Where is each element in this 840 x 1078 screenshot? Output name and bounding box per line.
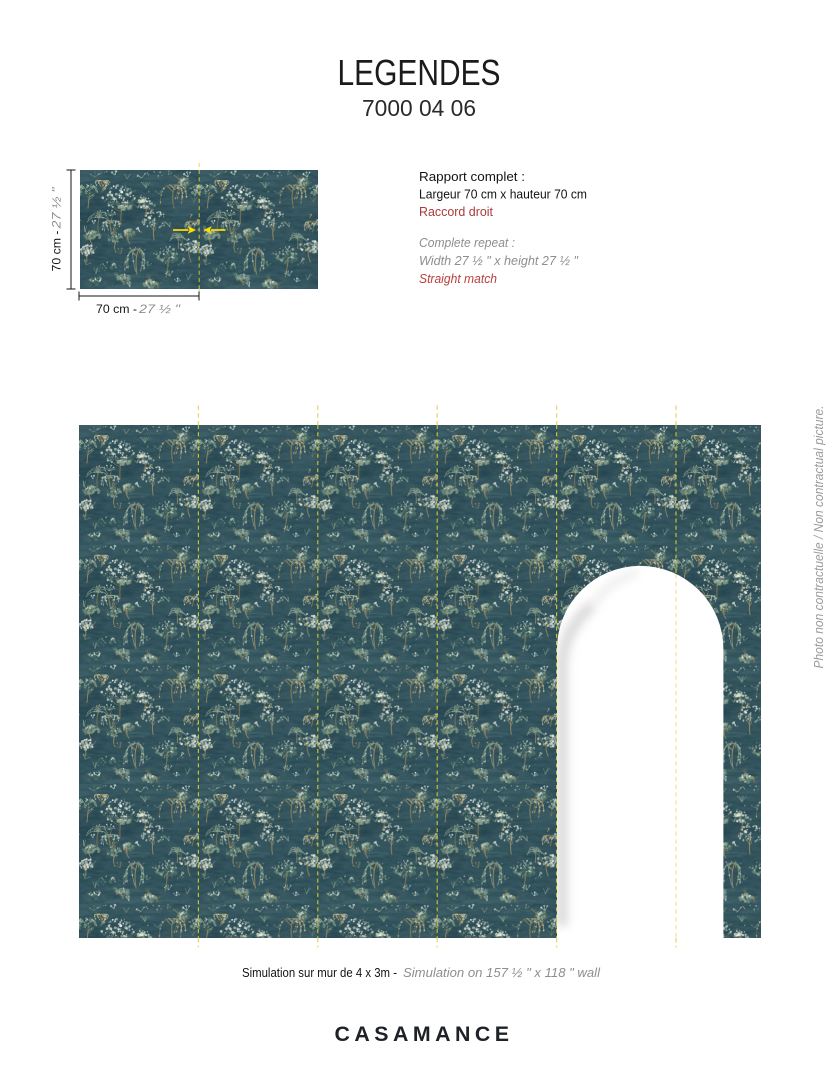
svg-text:Width 27 ½ " x height 27 ½ ": Width 27 ½ " x height 27 ½ ": [419, 254, 579, 268]
svg-text:CASAMANCE: CASAMANCE: [335, 1022, 514, 1046]
svg-text:27 ½ ": 27 ½ ": [138, 302, 181, 316]
svg-text:Rapport complet :: Rapport complet :: [419, 170, 525, 184]
svg-text:LEGENDES: LEGENDES: [338, 52, 501, 93]
svg-text:7000 04 06: 7000 04 06: [362, 95, 476, 121]
svg-text:Simulation on 157 ½ " x 118 ": Simulation on 157 ½ " x 118 " wall: [403, 966, 601, 980]
svg-text:70 cm -: 70 cm -: [50, 231, 64, 272]
svg-text:Photo non contractuelle / Non: Photo non contractuelle / Non contractua…: [812, 406, 826, 669]
svg-text:27 ½ ": 27 ½ ": [50, 187, 64, 230]
svg-text:Simulation sur mur de 4 x 3m -: Simulation sur mur de 4 x 3m -: [242, 966, 397, 980]
svg-text:Straight match: Straight match: [419, 272, 497, 286]
svg-text:Largeur 70 cm x hauteur 70 cm: Largeur 70 cm x hauteur 70 cm: [419, 188, 587, 202]
svg-text:Complete repeat :: Complete repeat :: [419, 236, 515, 250]
svg-text:Raccord droit: Raccord droit: [419, 205, 493, 219]
svg-text:70 cm -: 70 cm -: [96, 302, 137, 316]
